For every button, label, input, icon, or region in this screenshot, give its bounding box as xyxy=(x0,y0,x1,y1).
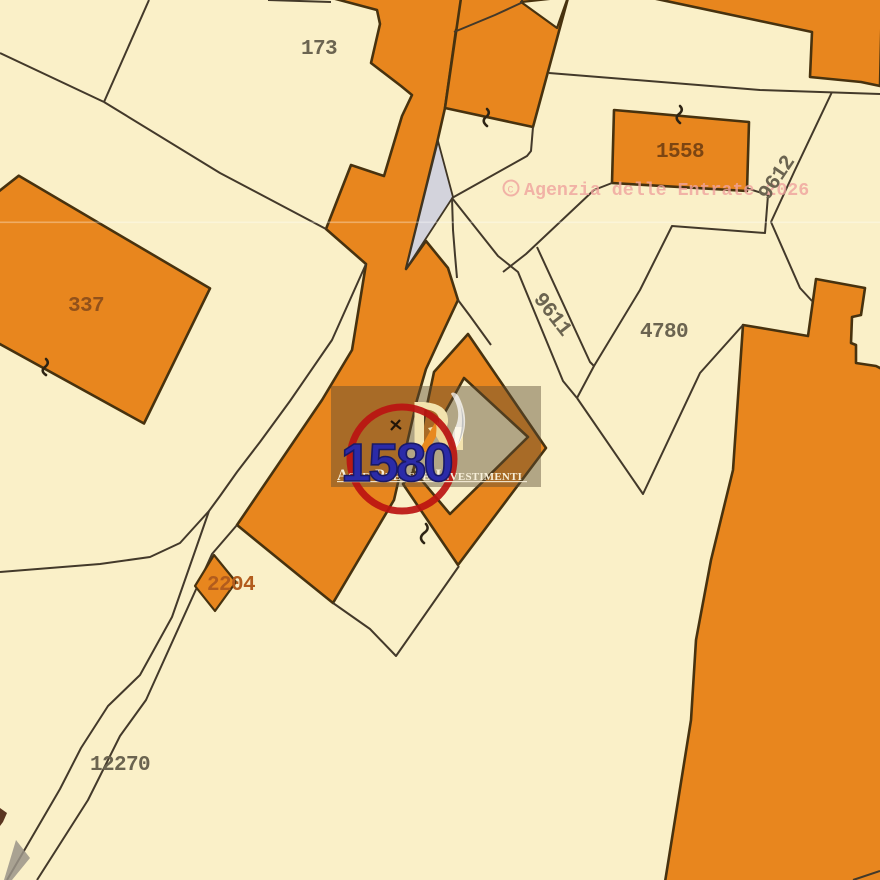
svg-text:173: 173 xyxy=(301,38,337,61)
svg-text:337: 337 xyxy=(68,295,104,318)
svg-text:1580: 1580 xyxy=(341,433,452,493)
svg-text:C: C xyxy=(508,186,514,197)
svg-text:4780: 4780 xyxy=(640,321,688,344)
svg-text:12270: 12270 xyxy=(90,754,150,777)
svg-text:1558: 1558 xyxy=(656,141,704,164)
svg-text:2204: 2204 xyxy=(207,574,255,597)
